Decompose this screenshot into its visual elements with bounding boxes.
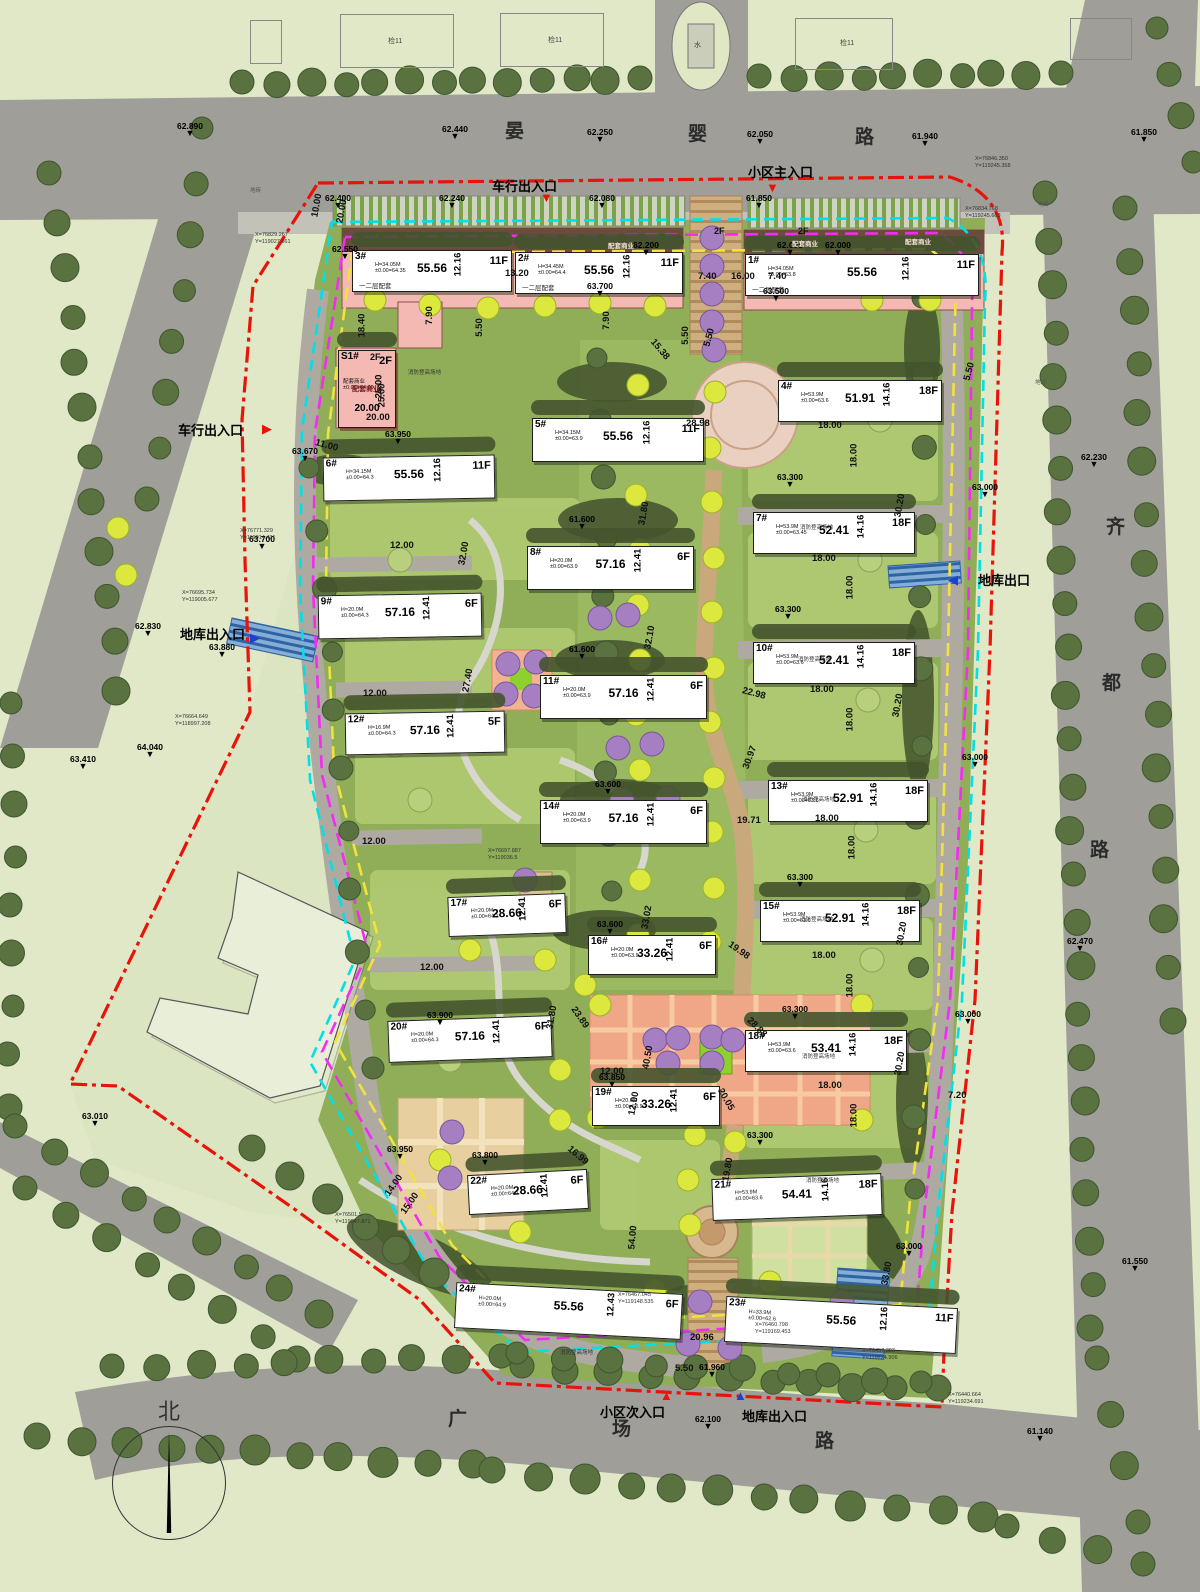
building-floors: 6F	[677, 551, 690, 563]
building-floors: 6F	[465, 598, 478, 610]
building-depth: 12.16	[621, 255, 632, 279]
building-length: 57.16	[541, 686, 706, 700]
tree-icon	[144, 1355, 170, 1381]
tree-icon	[122, 1187, 146, 1211]
building-depth: 14.16	[855, 645, 866, 669]
dimension-label-22: 18.00	[815, 813, 839, 824]
tree-icon	[362, 1349, 386, 1373]
building-length: 57.16	[541, 811, 706, 825]
elevation-marker-5: 61.850▼	[1124, 127, 1164, 141]
tree-icon	[570, 1464, 600, 1494]
tree-icon	[433, 71, 457, 95]
building-length: 54.41	[713, 1184, 881, 1204]
tree-icon	[42, 1139, 68, 1165]
area-label-7: 消防登高场地	[408, 368, 441, 376]
tree-icon	[549, 1059, 571, 1081]
dimension-label-0: 13.20	[505, 268, 529, 279]
road-name-north-0: 晏	[505, 116, 524, 143]
area-label-15: 检11	[388, 36, 402, 46]
elevation-marker-28: 63.300▼	[780, 872, 820, 886]
building-length: 28.66	[449, 904, 565, 922]
tree-icon	[102, 628, 128, 654]
elevation-marker-31: 63.000▼	[965, 482, 1005, 496]
building-depth: 12.16	[453, 253, 464, 277]
dimension-label-34: 12.00	[362, 836, 386, 847]
tree-icon	[1067, 952, 1095, 980]
building-floors: 6F	[570, 1174, 583, 1187]
road-name-south-0: 广	[448, 1404, 467, 1431]
building-10: 10# H=53.9M ±0.00=63.6 52.41 14.16 18F	[753, 642, 915, 684]
tree-icon	[95, 584, 119, 608]
dimension-label-54: 54.00	[626, 1225, 639, 1250]
tree-icon	[619, 1473, 645, 1499]
elevation-marker-45: 61.550▼	[1115, 1256, 1155, 1270]
building-floors: 11F	[472, 460, 491, 472]
tree-icon	[1084, 1536, 1112, 1564]
building-19: 19# H=20.0M ±0.00=63.9 33.26 12.41 6F	[592, 1086, 720, 1126]
tree-icon	[1135, 603, 1163, 631]
tree-icon	[276, 1162, 304, 1190]
tree-icon	[251, 1325, 275, 1349]
tree-icon	[856, 688, 880, 712]
dimension-label-57: 5.50	[675, 1363, 694, 1374]
building-floors: 5F	[488, 716, 501, 728]
building-18: 18# H=53.9M ±0.00=63.6 53.41 14.16 18F	[745, 1030, 907, 1072]
coordinate-label-9: X=76457.303 Y=119224.906	[862, 1348, 898, 1361]
elevation-marker-7: 62.240▼	[432, 193, 472, 207]
tree-icon	[912, 736, 932, 756]
tree-icon	[525, 1463, 553, 1491]
tree-icon	[442, 1345, 470, 1373]
tree-icon	[362, 1057, 384, 1079]
tree-icon	[335, 73, 359, 97]
tree-icon	[1077, 1315, 1103, 1341]
dimension-label-16: 18.00	[818, 420, 842, 431]
tree-icon	[419, 1258, 449, 1288]
tree-icon	[701, 601, 723, 623]
tree-icon	[1131, 550, 1157, 576]
tree-icon	[362, 69, 388, 95]
area-label-13: 2F	[798, 226, 809, 236]
tree-icon	[1142, 754, 1170, 782]
building-length: 52.41	[754, 653, 914, 667]
tree-icon	[0, 893, 22, 917]
building-floors: 18F	[884, 1035, 903, 1047]
building-11: 11# H=20.0M ±0.00=63.9 57.16 12.41 6F	[540, 675, 707, 719]
context-building-4	[250, 20, 282, 64]
tree-icon	[1142, 654, 1166, 678]
tree-icon	[629, 869, 651, 891]
dimension-label-1: 7.40	[698, 271, 717, 282]
elevation-marker-27: 63.300▼	[768, 604, 808, 618]
tree-icon	[459, 67, 485, 93]
tree-icon	[459, 939, 481, 961]
coordinate-label-10: X=76440.664 Y=119234.691	[948, 1392, 984, 1405]
area-label-11: 配套商业	[352, 384, 380, 394]
tree-icon	[438, 1166, 462, 1190]
tree-icon	[0, 940, 25, 966]
tree-icon	[951, 64, 975, 88]
tree-icon	[929, 1496, 957, 1524]
tree-icon	[322, 699, 344, 721]
tree-icon	[684, 1124, 706, 1146]
building-floors: 2F	[379, 355, 392, 367]
tree-icon	[0, 692, 22, 714]
tree-icon	[606, 736, 630, 760]
building-22: 22# H=20.0M ±0.00=64.1 28.66 12.41 6F	[467, 1169, 589, 1215]
tree-icon	[230, 70, 254, 94]
building-floors: 18F	[858, 1178, 877, 1191]
tree-icon	[534, 949, 556, 971]
building-depth: 12.41	[665, 938, 676, 962]
building-7: 7# H=53.9M ±0.00=63.45 52.41 14.16 18F	[753, 512, 915, 554]
coordinate-label-7: X=76467.045 Y=119148.535	[618, 1292, 654, 1305]
tree-icon	[2, 995, 24, 1017]
dimension-label-24: 18.00	[812, 950, 836, 961]
north-label: 北	[158, 1394, 180, 1426]
building-depth: 12.41	[421, 596, 432, 620]
tree-icon	[188, 1350, 216, 1378]
tree-icon	[666, 1026, 690, 1050]
building-length: 55.56	[353, 261, 511, 275]
tree-icon	[1128, 447, 1156, 475]
dimension-label-61: 7.20	[948, 1090, 967, 1101]
coordinate-label-0: X=76846.350 Y=119245.358	[975, 156, 1011, 169]
tree-icon	[912, 435, 936, 459]
tree-icon	[1117, 249, 1143, 275]
tree-icon	[1135, 503, 1159, 527]
elevation-marker-3: 62.050▼	[740, 129, 780, 143]
tree-icon	[1150, 905, 1178, 933]
tree-icon	[1068, 1045, 1094, 1071]
elevation-marker-9: 61.850▼	[739, 193, 779, 207]
building-floors: 6F	[665, 1298, 678, 1311]
tree-icon	[1085, 1346, 1109, 1370]
area-label-18: 水	[694, 40, 701, 50]
tree-icon	[160, 329, 184, 353]
tree-icon	[177, 222, 203, 248]
tree-icon	[24, 1423, 50, 1449]
tree-icon	[51, 254, 79, 282]
building-9: 9# H=20.0M ±0.00=64.3 57.16 12.41 6F	[318, 593, 483, 640]
tree-icon	[173, 280, 195, 302]
elevation-marker-34: 63.000▼	[889, 1241, 929, 1255]
entrance-label-4: 地库出口	[978, 570, 1030, 589]
building-5: 5# H=34.15M ±0.00=63.9 55.56 12.16 11F	[532, 418, 704, 462]
building-length: 55.56	[533, 429, 703, 443]
tree-icon	[193, 1227, 221, 1255]
tree-icon	[81, 1159, 109, 1187]
elevation-marker-36: 63.600▼	[590, 919, 630, 933]
tree-icon	[816, 1363, 840, 1387]
entrance-arrow-0: ▼	[540, 190, 553, 205]
road-name-north-1: 婴	[688, 119, 707, 146]
dimension-label-27: 18.00	[848, 1104, 859, 1128]
tree-icon	[1044, 499, 1070, 525]
area-label-8: 配套商业	[608, 240, 634, 250]
tree-icon	[168, 1274, 194, 1300]
tree-icon	[306, 520, 328, 542]
tree-icon	[1036, 228, 1062, 254]
dimension-label-2: 16.00	[731, 271, 755, 282]
dimension-label-6: 5.50	[474, 318, 485, 337]
tree-icon	[1012, 62, 1040, 90]
building-floors: 18F	[905, 785, 924, 797]
tree-icon	[1064, 909, 1090, 935]
tree-icon	[135, 487, 159, 511]
tree-icon	[240, 1435, 270, 1465]
tree-icon	[388, 548, 412, 572]
tree-icon	[589, 994, 611, 1016]
elevation-marker-30: 63.300▼	[740, 1130, 780, 1144]
building-depth: 12.41	[538, 1173, 550, 1197]
elevation-marker-8: 62.080▼	[582, 193, 622, 207]
dimension-label-7: 7.90	[601, 311, 612, 330]
area-label-5: 消防登高场地	[806, 1176, 839, 1184]
elevation-marker-38: 63.950▼	[380, 1144, 420, 1158]
tree-icon	[1131, 1552, 1155, 1576]
compass-needle	[161, 1431, 177, 1533]
building-floors: 11F	[935, 1312, 954, 1325]
building-8: 8# H=20.0M ±0.00=63.9 57.16 12.41 6F	[527, 546, 694, 590]
tree-icon	[657, 1474, 685, 1502]
entrance-arrow-1: ▼	[766, 180, 779, 195]
tree-icon	[910, 1371, 932, 1393]
tree-icon	[914, 59, 942, 87]
tree-icon	[700, 1025, 724, 1049]
tree-icon	[1160, 1008, 1186, 1034]
building-note: 一二层配套	[359, 280, 392, 290]
tree-icon	[153, 379, 179, 405]
entrance-label-6: 地库出入口	[742, 1406, 807, 1425]
building-length: 51.91	[779, 391, 941, 405]
tree-icon	[3, 1114, 27, 1138]
tree-icon	[78, 489, 104, 515]
dimension-label-23: 18.00	[846, 836, 857, 860]
tree-icon	[1043, 406, 1071, 434]
area-label-9: 配套商业	[792, 238, 818, 248]
building-depth: 12.41	[517, 897, 529, 921]
elevation-marker-21: 63.950▼	[378, 429, 418, 443]
elevation-marker-4: 61.940▼	[905, 131, 945, 145]
tree-icon	[415, 1450, 441, 1476]
area-label-6: 消防登高场地	[560, 1348, 593, 1356]
tree-icon	[506, 1342, 528, 1364]
tree-icon	[1, 744, 25, 768]
tree-icon	[721, 1028, 745, 1052]
tree-icon	[909, 586, 931, 608]
tree-icon	[602, 881, 622, 901]
elevation-marker-46: 61.140▼	[1020, 1426, 1060, 1440]
building-length: 55.56	[516, 263, 682, 277]
tree-icon	[835, 1491, 865, 1521]
tree-icon	[1039, 271, 1067, 299]
dimension-label-10: 20.00	[366, 412, 390, 423]
tree-icon	[1, 791, 27, 817]
dimension-label-48: 12.00	[600, 1066, 624, 1077]
tree-icon	[629, 759, 651, 781]
elevation-marker-41: 61.960▼	[692, 1362, 732, 1376]
tree-icon	[440, 1120, 464, 1144]
road-name-east-0: 齐	[1106, 512, 1125, 539]
dimension-label-20: 18.00	[810, 684, 834, 695]
residential-master-plan: { "title": "住宅小区总平面图", "colors": { "boun…	[0, 0, 1200, 1592]
area-label-14: 2F	[370, 352, 381, 362]
coordinate-label-1: X=76834.768 Y=119245.663	[965, 206, 1001, 219]
dimension-label-17: 18.00	[848, 444, 859, 468]
tree-icon	[905, 1179, 925, 1199]
elevation-marker-23: 63.500▼	[756, 286, 796, 300]
building-depth: 12.41	[646, 678, 657, 702]
tree-icon	[597, 1347, 623, 1373]
tree-icon	[154, 1207, 180, 1233]
tree-icon	[1156, 955, 1180, 979]
compass-circle	[112, 1426, 226, 1540]
west-road	[0, 196, 266, 748]
area-label-4: 消防登高场地	[802, 1052, 835, 1060]
area-label-19: 地砖	[250, 186, 261, 194]
elevation-marker-14: 62.830▼	[128, 621, 168, 635]
tree-icon	[703, 877, 725, 899]
tree-icon	[102, 677, 130, 705]
tree-icon	[100, 1354, 124, 1378]
building-depth: 12.41	[491, 1019, 503, 1043]
tree-icon	[313, 1184, 343, 1214]
building-depth: 12.41	[646, 803, 657, 827]
tree-icon	[93, 1224, 121, 1252]
dimension-label-33: 12.00	[363, 688, 387, 699]
tree-icon	[1182, 151, 1200, 173]
tree-icon	[13, 1176, 37, 1200]
road-name-south-2: 路	[815, 1426, 834, 1453]
elevation-marker-15: 63.010▼	[75, 1111, 115, 1125]
elevation-marker-17: 64.040▼	[130, 742, 170, 756]
tree-icon	[368, 1447, 398, 1477]
coordinate-label-2: X=76829.267 Y=119027.861	[255, 232, 291, 245]
tree-icon	[978, 60, 1004, 86]
entrance-arrow-2: ▶	[262, 421, 272, 437]
tree-icon	[68, 1428, 96, 1456]
area-label-10: 配套商业	[905, 236, 931, 246]
tree-icon	[37, 161, 61, 185]
building-14: 14# H=20.0M ±0.00=63.9 57.16 12.41 6F	[540, 800, 707, 844]
context-building-3	[1070, 18, 1132, 60]
elevation-marker-43: 62.230▼	[1074, 452, 1114, 466]
area-label-0: 消防登高场地	[800, 523, 833, 531]
building-floors: 6F	[549, 898, 562, 910]
tree-icon	[1127, 352, 1151, 376]
tree-icon	[1121, 296, 1149, 324]
tree-icon	[703, 547, 725, 569]
tree-icon	[1066, 1002, 1090, 1026]
dimension-label-8: 5.50	[680, 326, 691, 345]
building-floors: 18F	[892, 647, 911, 659]
building-depth: 12.16	[432, 458, 443, 482]
tree-icon	[1056, 634, 1082, 660]
tree-icon	[1073, 1180, 1099, 1206]
tree-icon	[85, 538, 113, 566]
tree-icon	[1126, 1510, 1150, 1534]
building-20: 20# H=20.0M ±0.00=64.3 57.16 12.41 6F	[387, 1015, 552, 1063]
tree-icon	[53, 1202, 79, 1228]
building-depth: 14.16	[869, 783, 880, 807]
tree-icon	[916, 515, 936, 535]
area-label-21: 地砖	[1035, 378, 1046, 386]
tree-icon	[477, 297, 499, 319]
coordinate-label-6: X=76697.887 Y=119036.5	[488, 848, 521, 861]
tree-icon	[790, 1485, 818, 1513]
tree-icon	[0, 1042, 20, 1066]
tree-icon	[78, 445, 102, 469]
building-length: 57.16	[528, 557, 693, 571]
dimension-label-4: 18.40	[356, 314, 367, 338]
tree-icon	[329, 756, 353, 780]
building-depth: 12.41	[445, 714, 456, 738]
entrance-arrow-5: ▲	[660, 1388, 673, 1403]
tree-icon	[591, 465, 615, 489]
tree-icon	[564, 65, 590, 91]
tree-icon	[902, 1105, 926, 1129]
building-17: 17# H=20.0M ±0.00=64.1 28.66 12.41 6F	[447, 893, 566, 937]
tree-icon	[1057, 727, 1081, 751]
tree-icon	[751, 1484, 777, 1510]
dimension-label-14: 28.98	[686, 418, 710, 429]
tree-icon	[747, 64, 771, 88]
tree-icon	[287, 1443, 313, 1469]
building-4: 4# H=53.9M ±0.00=63.6 51.91 14.16 18F	[778, 380, 942, 422]
tree-icon	[1146, 17, 1168, 39]
tree-icon	[1124, 400, 1150, 426]
building-floors: 6F	[699, 940, 712, 952]
tree-icon	[1098, 1401, 1124, 1427]
tree-icon	[1110, 1452, 1138, 1480]
elevation-marker-32: 63.000▼	[955, 752, 995, 766]
elevation-marker-1: 62.440▼	[435, 124, 475, 138]
building-depth: 14.16	[847, 1033, 858, 1057]
area-label-17: 检11	[840, 38, 854, 48]
building-depth: 14.16	[861, 903, 872, 927]
tree-icon	[995, 1514, 1019, 1538]
tree-icon	[588, 606, 612, 630]
building-floors: 18F	[919, 385, 938, 397]
building-floors: 6F	[690, 680, 703, 692]
dimension-label-56: 20.96	[690, 1332, 714, 1343]
elevation-marker-26: 63.300▼	[770, 472, 810, 486]
tree-icon	[44, 210, 70, 236]
entrance-label-5: 小区次入口	[600, 1402, 665, 1421]
tree-icon	[1039, 1527, 1065, 1553]
tree-icon	[208, 1295, 236, 1323]
coordinate-label-5: X=76664.649 Y=118997.208	[175, 714, 211, 727]
tree-icon	[1060, 774, 1086, 800]
building-depth: 12.41	[633, 549, 644, 573]
tree-icon	[1075, 1227, 1103, 1255]
elevation-marker-33: 63.000▼	[948, 1009, 988, 1023]
building-id: S1#	[341, 351, 359, 362]
tree-icon	[1081, 1273, 1105, 1297]
entrance-arrow-6: ▲	[734, 1388, 747, 1403]
tree-icon	[509, 1221, 531, 1243]
tree-icon	[408, 788, 432, 812]
building-length: 57.16	[346, 722, 504, 739]
tree-icon	[640, 732, 664, 756]
tree-icon	[305, 1300, 333, 1328]
tree-icon	[68, 393, 96, 421]
tree-icon	[364, 289, 386, 311]
area-label-1: 消防登高场地	[798, 655, 831, 663]
tree-icon	[1049, 456, 1073, 480]
building-floors: 18F	[892, 517, 911, 529]
